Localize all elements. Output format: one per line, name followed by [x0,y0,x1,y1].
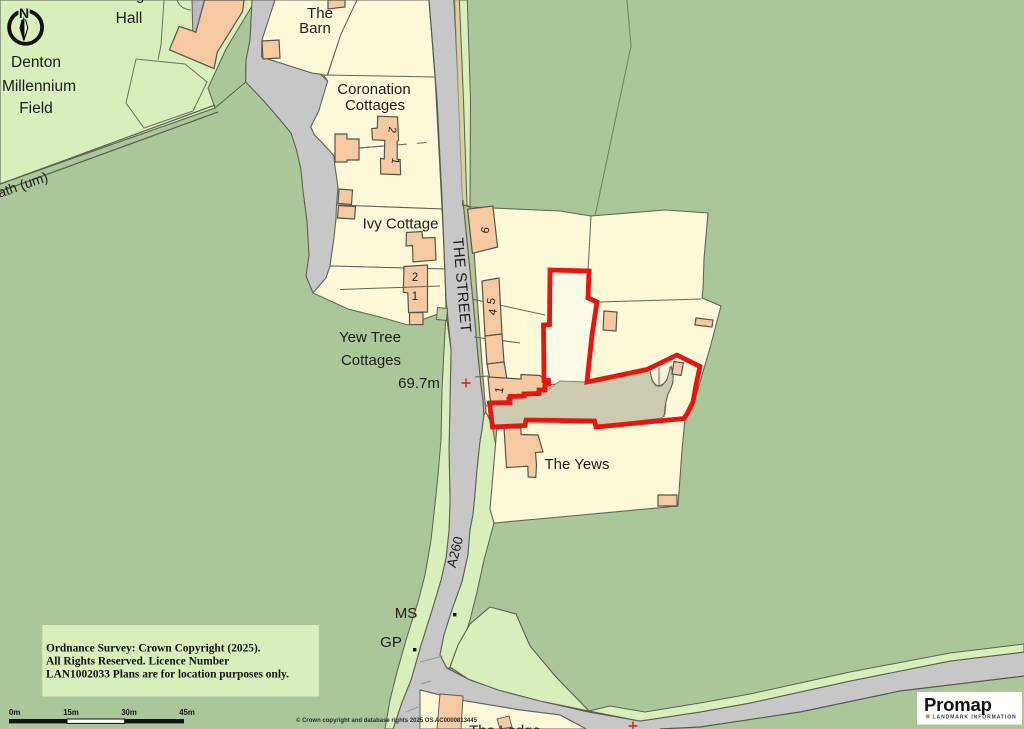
svg-text:Hall: Hall [116,10,143,27]
svg-text:The Lodge: The Lodge [469,723,541,729]
svg-text:Ordnance Survey: Crown Copyrig: Ordnance Survey: Crown Copyright (2025). [46,643,261,655]
svg-text:MS: MS [395,605,418,622]
svg-text:GP: GP [380,634,402,651]
svg-text:All Rights Reserved. Licence N: All Rights Reserved. Licence Number [46,656,229,668]
svg-text:Denton: Denton [11,54,61,71]
svg-text:69.7m: 69.7m [398,375,440,392]
svg-text:45m: 45m [179,708,195,717]
svg-text:Coronation: Coronation [337,81,410,98]
svg-text:Ivy Cottage: Ivy Cottage [363,216,439,233]
svg-text:Cottages: Cottages [341,352,401,369]
svg-text:0m: 0m [9,708,20,717]
svg-text:Barn: Barn [299,20,331,37]
svg-text:Field: Field [19,100,53,117]
svg-text:LAN1002033 Plans are for locat: LAN1002033 Plans are for location purpos… [46,668,289,680]
svg-text:Promap: Promap [924,694,992,715]
svg-text:15m: 15m [63,708,79,717]
svg-text:Millennium: Millennium [2,78,76,95]
svg-text:1: 1 [412,291,418,303]
svg-text:© Crown copyright and database: © Crown copyright and database rights 20… [296,717,478,724]
svg-text:30m: 30m [121,708,137,717]
svg-text:N: N [19,5,29,21]
svg-text:Yew Tree: Yew Tree [339,329,401,346]
svg-text:LANDMARK INFORMATION: LANDMARK INFORMATION [933,715,1017,721]
svg-text:g: g [136,0,144,4]
svg-text:Cottages: Cottages [345,97,405,114]
svg-text:2: 2 [412,272,418,284]
svg-text:The Yews: The Yews [544,456,609,473]
